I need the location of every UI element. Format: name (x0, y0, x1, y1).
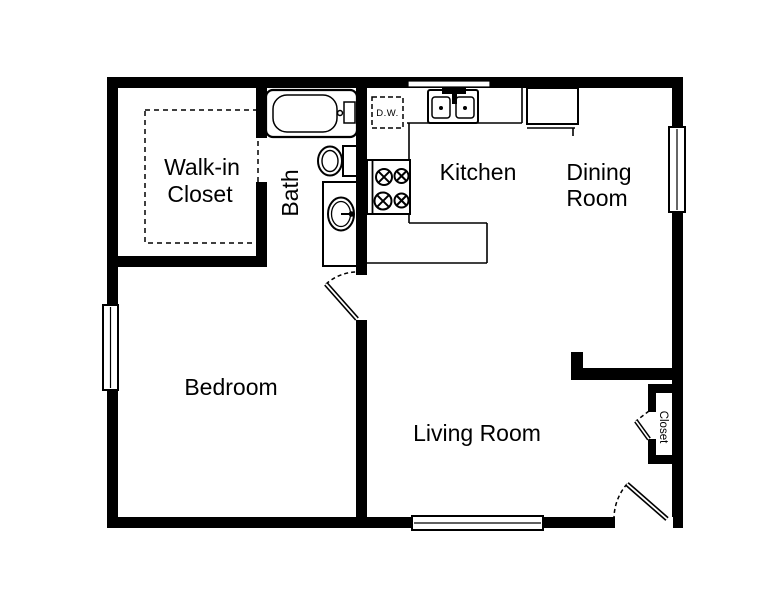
closet-label: Closet (657, 411, 669, 444)
wall-bedroom-living (356, 320, 367, 517)
floor-plan-drawing: D.W. (0, 0, 774, 599)
vanity-sink-icon (323, 182, 357, 266)
kitchen-label: Kitchen (440, 159, 517, 185)
wall-closet-left-upper (648, 384, 656, 412)
wall-closet-bath-lower (256, 182, 267, 267)
living-room-label: Living Room (413, 420, 541, 446)
wall-exterior-bottom (107, 517, 683, 528)
wall-closet-bottom (648, 455, 672, 464)
wall-exterior-top (107, 77, 683, 88)
wall-closet-left-lower (648, 439, 656, 457)
wall-dining-living-divider (571, 368, 672, 380)
kitchen-sink-icon (428, 88, 478, 123)
refrigerator-icon (527, 88, 578, 136)
floor-plan-canvas: D.W. (0, 0, 774, 599)
wall-bedroom-top (107, 256, 267, 267)
bath-label: Bath (277, 169, 303, 216)
dining-room-label-line1: Dining (566, 159, 631, 185)
walk-in-closet-label-line1: Walk-in (164, 154, 240, 180)
dining-room-label-line2: Room (566, 185, 627, 211)
wall-exterior-left (107, 77, 118, 528)
walk-in-closet-label-line2: Closet (167, 181, 233, 207)
top-kitchen-window (408, 81, 490, 87)
bedroom-label: Bedroom (184, 374, 277, 400)
left-bedroom-window (103, 305, 118, 390)
wall-closet-bath-upper (256, 88, 267, 138)
right-dining-window (669, 127, 685, 212)
stove-icon (367, 160, 410, 214)
toilet-icon (318, 146, 357, 176)
dishwasher-icon: D.W. (372, 97, 403, 128)
bathtub-icon (266, 90, 357, 137)
wall-bath-kitchen (356, 88, 367, 275)
bottom-living-window (412, 516, 543, 530)
dishwasher-label: D.W. (376, 108, 399, 119)
